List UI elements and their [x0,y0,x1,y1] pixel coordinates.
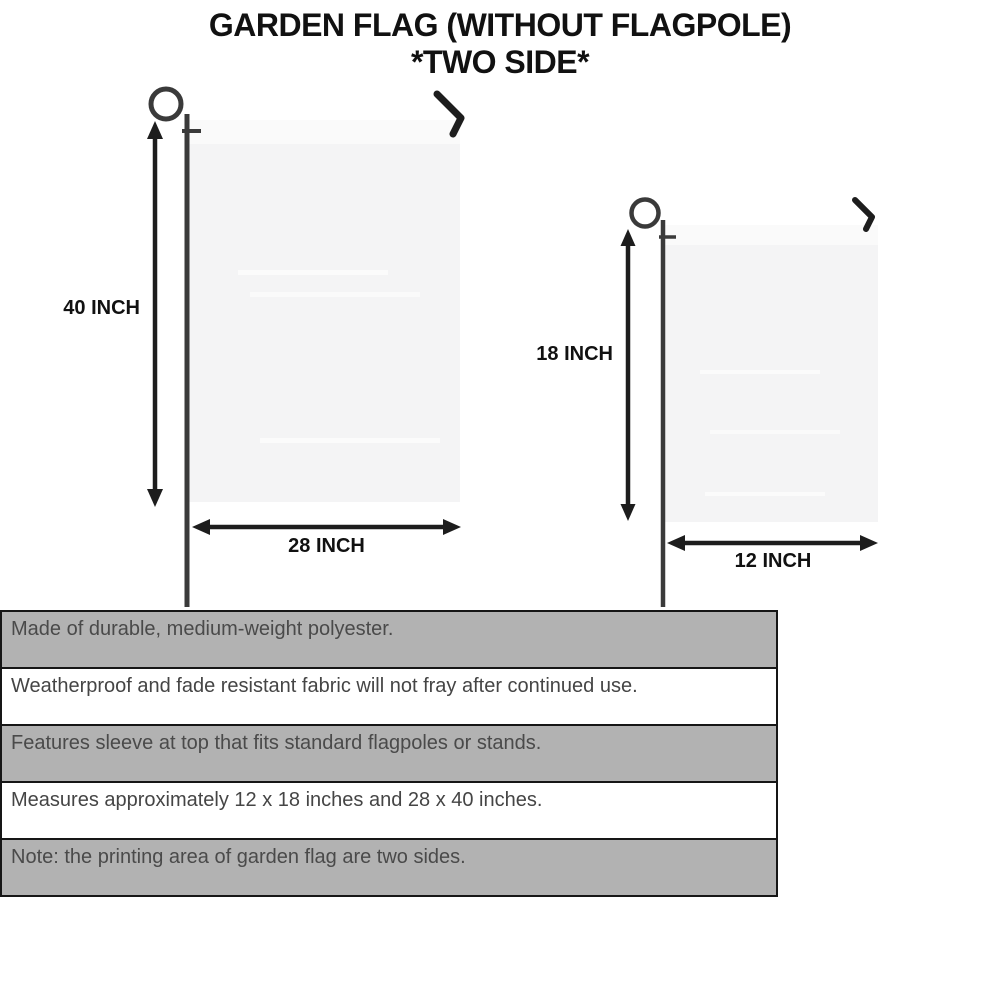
large-height-arrowhead-bottom [147,489,163,507]
feature-text: Note: the printing area of garden flag a… [11,846,466,868]
feature-text: Made of durable, medium-weight polyester… [11,618,393,640]
small-flag-wrinkle [700,370,820,374]
large-flag-wrinkle [238,270,388,275]
large-flag-height-label: 40 INCH [38,296,140,320]
feature-row-material: Made of durable, medium-weight polyester… [0,610,778,669]
feature-list: Made of durable, medium-weight polyester… [0,610,778,897]
garden-flag-infographic: GARDEN FLAG (WITHOUT FLAGPOLE) *TWO SIDE… [0,0,1000,1000]
feature-text: Features sleeve at top that fits standar… [11,732,541,754]
large-flagpole-loop [151,89,181,119]
small-flag-sleeve [663,225,878,245]
small-flag-wrinkle [705,492,825,496]
large-flag-wrinkle [260,438,440,443]
feature-row-note: Note: the printing area of garden flag a… [0,838,778,897]
feature-row-sleeve: Features sleeve at top that fits standar… [0,724,778,783]
large-flag-wrinkle [250,292,420,297]
small-flag-diagram [621,200,879,608]
small-flag-wrinkle [710,430,840,434]
feature-row-measurements: Measures approximately 12 x 18 inches an… [0,781,778,840]
large-height-arrowhead-top [147,121,163,139]
small-flag-height-label: 18 INCH [511,342,613,366]
small-flagpole-loop [632,200,659,227]
small-flag-width-label: 12 INCH [668,549,878,573]
large-flag-sleeve [187,120,460,144]
small-height-arrowhead-top [621,229,636,246]
feature-text: Weatherproof and fade resistant fabric w… [11,675,638,697]
small-flag-hook [855,200,872,229]
large-flag-diagram [147,89,461,607]
large-flag-width-label: 28 INCH [193,534,460,558]
flag-diagram-layer [0,0,1000,610]
feature-row-weatherproof: Weatherproof and fade resistant fabric w… [0,667,778,726]
large-flag-body [187,120,460,502]
large-width-arrowhead-left [192,519,210,535]
large-width-arrowhead-right [443,519,461,535]
small-height-arrowhead-bottom [621,504,636,521]
feature-text: Measures approximately 12 x 18 inches an… [11,789,542,811]
